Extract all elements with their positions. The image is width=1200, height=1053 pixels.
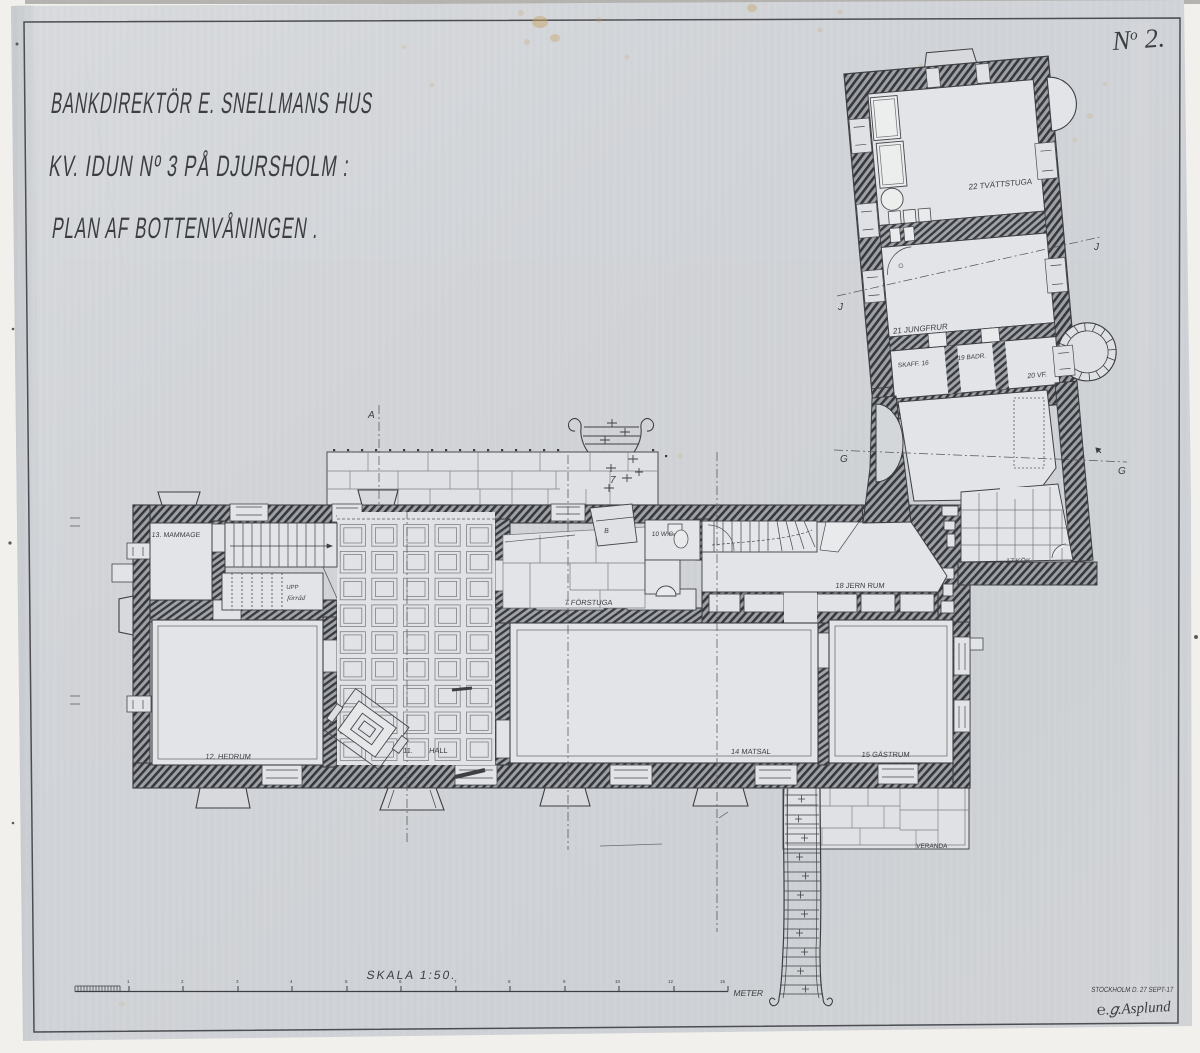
svg-text:SKALA 1:50.: SKALA 1:50. — [365, 968, 457, 982]
svg-text:7 FÖRSTUGA: 7 FÖRSTUGA — [564, 598, 613, 607]
svg-text:12: 12 — [668, 979, 674, 984]
svg-text:14 MATSAL: 14 MATSAL — [731, 747, 772, 756]
svg-text:18 JERN RUM: 18 JERN RUM — [835, 581, 885, 590]
svg-text:13. MAMMAGE: 13. MAMMAGE — [151, 532, 201, 539]
svg-text:HALL: HALL — [429, 746, 449, 755]
svg-text:G: G — [840, 454, 848, 465]
svg-text:10: 10 — [615, 979, 621, 984]
svg-text:15: 15 — [720, 979, 726, 984]
svg-text:UPP: UPP — [286, 585, 299, 591]
svg-text:11.: 11. — [403, 746, 414, 755]
svg-text:10 W.C.: 10 W.C. — [651, 531, 675, 538]
svg-text:17 KÖK: 17 KÖK — [1006, 557, 1032, 565]
svg-text:G: G — [1118, 466, 1126, 477]
svg-text:7: 7 — [610, 475, 616, 486]
svg-text:12. HEDRUM: 12. HEDRUM — [205, 752, 251, 761]
svg-text:15 GÄSTRUM: 15 GÄSTRUM — [861, 750, 910, 759]
svg-text:förråd: förråd — [287, 594, 306, 602]
svg-text:PLAN AF BOTTENVÅNINGEN .: PLAN AF BOTTENVÅNINGEN . — [50, 211, 322, 245]
svg-text:BANKDIREKTÖR E. SNELLMANS HU: BANKDIREKTÖR E. SNELLMANS HUS — [49, 86, 376, 120]
svg-text:No 2.: No 2. — [1110, 22, 1165, 56]
svg-text:J: J — [837, 302, 844, 313]
svg-text:KV. IDUN Nº 3 PÅ DJURSHOLM: KV. IDUN Nº 3 PÅ DJURSHOLM : — [47, 149, 352, 183]
svg-text:J: J — [1093, 242, 1100, 253]
svg-text:STOCKHOLM D. 27 SEPT-17: STOCKHOLM D. 27 SEPT-17 — [1091, 985, 1174, 994]
svg-text:VERANDA: VERANDA — [916, 843, 949, 850]
svg-text:METER: METER — [733, 988, 764, 998]
svg-text:A: A — [367, 410, 375, 421]
